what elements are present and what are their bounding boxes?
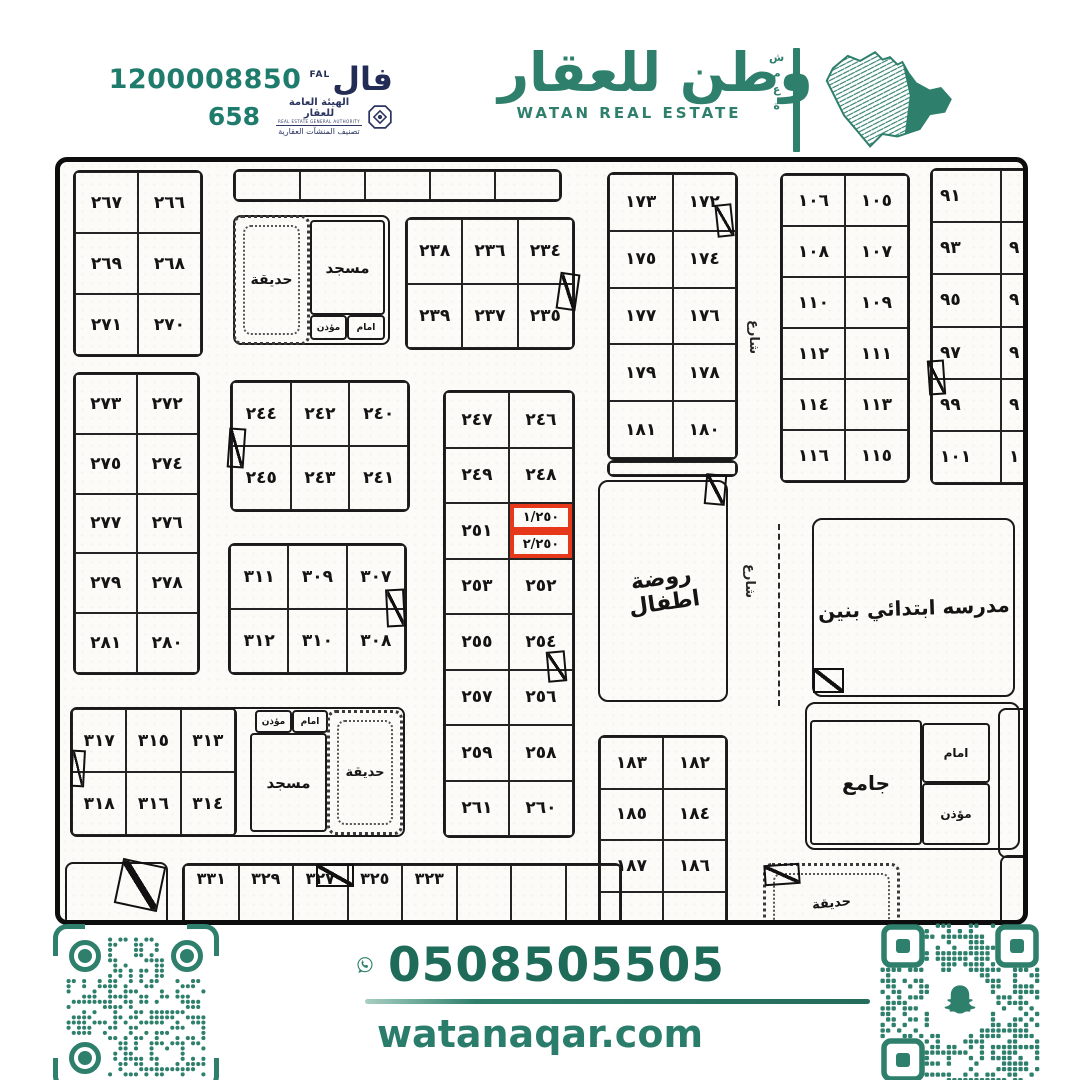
empty-plot (1001, 170, 1028, 222)
rega-license-number: 658 (208, 102, 260, 131)
plot-١٧٩: ١٧٩ (609, 344, 673, 401)
garden-top-label: حديقة (251, 272, 293, 288)
empty-plot (511, 865, 566, 925)
plot-١٠١: ١٠١ (932, 431, 1001, 483)
plot-٢٥٥: ٢٥٥ (445, 614, 509, 670)
muezzin-bl-label: مؤذن (262, 717, 286, 727)
plot-٢٧٧: ٢٧٧ (75, 494, 137, 554)
plot-٢٧٥: ٢٧٥ (75, 434, 137, 494)
plot-٣٢٩: ٣٢٩ (239, 865, 294, 925)
mosque-top-label: مسجد (325, 259, 369, 277)
plot-٩: ٩ (1001, 222, 1028, 274)
plot-٢٧٩: ٢٧٩ (75, 553, 137, 613)
plot-٢٣٧: ٢٣٧ (462, 284, 517, 349)
imam-top: امام (347, 315, 385, 340)
utility-marker-icon (813, 668, 844, 693)
plot-٣١٦: ٣١٦ (126, 772, 180, 835)
plot-٢٥٩: ٢٥٩ (445, 725, 509, 781)
plot-٢٤٦: ٢٤٦ (509, 392, 573, 448)
jame-mosque: جامع (810, 720, 922, 845)
empty-plot (609, 462, 736, 475)
plot-١٨٠: ١٨٠ (673, 401, 737, 458)
muezzin-top: مؤذن (310, 315, 347, 340)
kindergarten-label: روضة اطفال (624, 561, 702, 620)
kindergarten: روضة اطفال (598, 480, 728, 702)
utility-marker-icon (927, 359, 946, 395)
license-block: 1200008850 FAL فال 658 الهيئة العامة للع… (168, 64, 393, 136)
empty-plot (663, 892, 726, 926)
plot-٣١٣: ٣١٣ (181, 709, 235, 772)
muezzin-jame-label: مؤذن (940, 807, 971, 821)
plot-٢٧٤: ٢٧٤ (137, 434, 199, 494)
plot-١٧٥: ١٧٥ (609, 231, 673, 288)
utility-marker-icon (227, 427, 247, 468)
utility-marker-icon (385, 589, 406, 628)
plot-٢٨١: ٢٨١ (75, 613, 137, 673)
plot-١١٣: ١١٣ (845, 379, 908, 430)
plot-٢٧٨: ٢٧٨ (137, 553, 199, 613)
plot-٣١٢: ٣١٢ (230, 609, 288, 673)
plot-٢٧٠: ٢٧٠ (138, 294, 201, 355)
block-272s: ٢٧٣٢٧٢٢٧٥٢٧٤٢٧٧٢٧٦٢٧٩٢٧٨٢٨١٢٨٠ (73, 372, 200, 675)
imam-top-label: امام (357, 323, 376, 333)
plot-١٨٣: ١٨٣ (600, 737, 663, 789)
fal-license-number: 1200008850 (109, 64, 302, 95)
empty-plot (495, 171, 560, 200)
empty-plot (365, 171, 430, 200)
website-qr-code (57, 928, 215, 1080)
empty-plot (457, 865, 512, 925)
utility-marker-icon (114, 858, 167, 912)
plot-١٨٦: ١٨٦ (663, 840, 726, 892)
whatsapp-number: 0508505505 (388, 938, 725, 993)
plot-٩٣: ٩٣ (932, 222, 1001, 274)
plot-١٠٩: ١٠٩ (845, 277, 908, 328)
imam-bl-label: امام (301, 717, 320, 727)
highlighted-plot-١/٢٥٠: ١/٢٥٠ (510, 504, 572, 531)
brand-divider-bar (793, 48, 800, 152)
whatsapp-icon (355, 936, 375, 994)
utility-marker-icon (70, 750, 86, 788)
plot-٢٦١: ٢٦١ (445, 781, 509, 837)
plot-١: ١ (1001, 431, 1028, 483)
plot-١١١: ١١١ (845, 328, 908, 379)
plot-250-highlighted: ١/٢٥٠٢/٢٥٠ (509, 503, 573, 559)
plot-٢٦٠: ٢٦٠ (509, 781, 573, 837)
website-url: watanaqar.com (355, 1012, 725, 1056)
plot-١٧٤: ١٧٤ (673, 231, 737, 288)
rega-logo: الهيئة العامة للعقار REAL ESTATE GENERAL… (276, 97, 393, 136)
garden-top: حديقة (233, 215, 310, 345)
plot-١١٠: ١١٠ (782, 277, 845, 328)
plot-١١٤: ١١٤ (782, 379, 845, 430)
plot-٢٦٧: ٢٦٧ (75, 172, 138, 233)
plot-٩: ٩ (1001, 379, 1028, 431)
mosque-bl: مسجد (250, 733, 327, 832)
fal-logo-ar-label: فال (332, 65, 393, 94)
empty-plot (300, 171, 365, 200)
plot-٩٥: ٩٥ (932, 274, 1001, 326)
imam-bl: امام (292, 710, 328, 733)
plot-٢٤٩: ٢٤٩ (445, 448, 509, 504)
empty-plot (566, 865, 621, 925)
plot-١٠٦: ١٠٦ (782, 175, 845, 226)
bottom-strip: ٣٣١٣٢٩٣٢٧٣٢٥٣٢٣ (182, 863, 622, 925)
plot-٢٦٩: ٢٦٩ (75, 233, 138, 294)
plot-٢٣٦: ٢٣٦ (462, 219, 517, 284)
garden-br-label: حديقة (811, 894, 851, 913)
utility-marker-icon (556, 272, 581, 311)
block-266s: ٢٦٧٢٦٦٢٦٩٢٦٨٢٧١٢٧٠ (73, 170, 203, 357)
utility-marker-icon (316, 864, 354, 887)
partial-right-mid (998, 708, 1028, 858)
plot-١٠٧: ١٠٧ (845, 226, 908, 277)
rega-rosette-icon (367, 104, 393, 130)
fal-logo: FAL فال (309, 65, 393, 94)
plot-٣١٥: ٣١٥ (126, 709, 180, 772)
plot-٢٧٦: ٢٧٦ (137, 494, 199, 554)
plot-٢٥٣: ٢٥٣ (445, 559, 509, 615)
rega-title-ar: الهيئة العامة للعقار (276, 97, 362, 119)
contact-block: 0508505505 (355, 936, 725, 994)
block-91s: ٩١٩٣٩٩٥٩٩٧٩٩٩٩١٠١١ (930, 168, 1028, 485)
plot-٢٨٠: ٢٨٠ (137, 613, 199, 673)
utility-marker-icon (714, 203, 734, 238)
brand-name-arabic: وطن للعقار (498, 38, 760, 108)
imam-jame: امام (922, 723, 990, 783)
brand-logo: وطن للعقار WATAN REAL ESTATE شمعة (498, 38, 961, 160)
plot-٩١: ٩١ (932, 170, 1001, 222)
plot-٩: ٩ (1001, 274, 1028, 326)
plot-١٧٣: ١٧٣ (609, 174, 673, 231)
utility-marker-icon (546, 650, 568, 683)
plot-١١٥: ١١٥ (845, 430, 908, 481)
street-label: شارع (746, 320, 761, 386)
plot-١٨٥: ١٨٥ (600, 789, 663, 841)
block-105s: ١٠٦١٠٥١٠٨١٠٧١١٠١٠٩١١٢١١١١١٤١١٣١١٦١١٥ (780, 173, 910, 483)
plot-١٠٥: ١٠٥ (845, 175, 908, 226)
plot-٣٢٥: ٣٢٥ (348, 865, 403, 925)
garden-bl-label: حديقة (346, 765, 385, 780)
plot-٣٣١: ٣٣١ (184, 865, 239, 925)
plot-٢٧٢: ٢٧٢ (137, 374, 199, 434)
block-313s: ٣١٧٣١٥٣١٣٣١٨٣١٦٣١٤ (70, 707, 237, 837)
brand-vertical-word: شمعة (769, 50, 784, 114)
utility-marker-icon (763, 863, 800, 886)
plot-٣١٤: ٣١٤ (181, 772, 235, 835)
empty-plot (430, 171, 495, 200)
highlighted-plot-٢/٢٥٠: ٢/٢٥٠ (510, 531, 572, 558)
plot-٣٢٣: ٣٢٣ (402, 865, 457, 925)
plot-٢٥١: ٢٥١ (445, 503, 509, 559)
mosque-bl-label: مسجد (266, 774, 310, 792)
block-240s: ٢٤٤٢٤٢٢٤٠٢٤٥٢٤٣٢٤١ (230, 380, 410, 512)
partial-right-bottom (1000, 855, 1028, 925)
plot-٢٥٨: ٢٥٨ (509, 725, 573, 781)
street-dashed-line (778, 524, 780, 706)
plot-١٧٨: ١٧٨ (673, 344, 737, 401)
saudi-map-icon (809, 46, 961, 160)
plot-٢٥٧: ٢٥٧ (445, 670, 509, 726)
plat-map: حديقةمسجدمؤذنامامروضة اطفالمدرسه ابتدائي… (55, 157, 1028, 925)
utility-marker-icon (704, 473, 728, 506)
plot-١٧٦: ١٧٦ (673, 288, 737, 345)
flyer-page: 1200008850 FAL فال 658 الهيئة العامة للع… (0, 0, 1080, 1080)
plot-٢٤٨: ٢٤٨ (509, 448, 573, 504)
block-234s: ٢٣٨٢٣٦٢٣٤٢٣٩٢٣٧٢٣٥ (405, 217, 575, 350)
brand-name-english: WATAN REAL ESTATE (498, 104, 760, 122)
rega-subtitle-ar: تصنيف المنشآت العقارية (276, 127, 362, 136)
block-307s: ٣١١٣٠٩٣٠٧٣١٢٣١٠٣٠٨ (228, 543, 407, 675)
plot-٢٣٨: ٢٣٨ (407, 219, 462, 284)
muezzin-jame: مؤذن (922, 783, 990, 845)
plot-١٨٤: ١٨٤ (663, 789, 726, 841)
plot-٢٥٢: ٢٥٢ (509, 559, 573, 615)
plot-٢٣٩: ٢٣٩ (407, 284, 462, 349)
plot-٣٠٩: ٣٠٩ (288, 545, 346, 609)
fal-logo-en-label: FAL (309, 70, 330, 80)
jame-mosque-label: جامع (842, 771, 890, 795)
plot-١٧٧: ١٧٧ (609, 288, 673, 345)
garden-bl: حديقة (327, 710, 403, 835)
muezzin-bl: مؤذن (255, 710, 292, 733)
footer-divider (365, 999, 870, 1004)
block-246s: ٢٤٧٢٤٦٢٤٩٢٤٨٢٥١١/٢٥٠٢/٢٥٠٢٥٣٢٥٢٢٥٥٢٥٤٢٥٧… (443, 390, 575, 838)
plot-٢٤٣: ٢٤٣ (291, 446, 350, 510)
snapchat-qr-code (880, 923, 1040, 1080)
plot-٩: ٩ (1001, 327, 1028, 379)
plot-١٠٨: ١٠٨ (782, 226, 845, 277)
plot-٢٦٦: ٢٦٦ (138, 172, 201, 233)
plot-٣١٠: ٣١٠ (288, 609, 346, 673)
plot-٢٦٨: ٢٦٨ (138, 233, 201, 294)
plot-٢٤٠: ٢٤٠ (349, 382, 408, 446)
plot-٣١١: ٣١١ (230, 545, 288, 609)
plot-٢٧٣: ٢٧٣ (75, 374, 137, 434)
plot-١١٢: ١١٢ (782, 328, 845, 379)
imam-jame-label: امام (944, 746, 969, 760)
plot-١٨١: ١٨١ (609, 401, 673, 458)
plot-٢٤٢: ٢٤٢ (291, 382, 350, 446)
plot-٢٤٧: ٢٤٧ (445, 392, 509, 448)
school-label: مدرسه ابتدائي بنين (817, 592, 1009, 623)
plot-١١٦: ١١٦ (782, 430, 845, 481)
mosque-top: مسجد (310, 220, 385, 315)
street-label: شارع (742, 564, 757, 672)
top-strip (233, 169, 562, 202)
plot-٢٧١: ٢٧١ (75, 294, 138, 355)
plot-١٨٢: ١٨٢ (663, 737, 726, 789)
empty-plot (235, 171, 300, 200)
rega-title-en: REAL ESTATE GENERAL AUTHORITY (276, 119, 362, 126)
plot-٢٤١: ٢٤١ (349, 446, 408, 510)
muezzin-top-label: مؤذن (317, 323, 341, 333)
